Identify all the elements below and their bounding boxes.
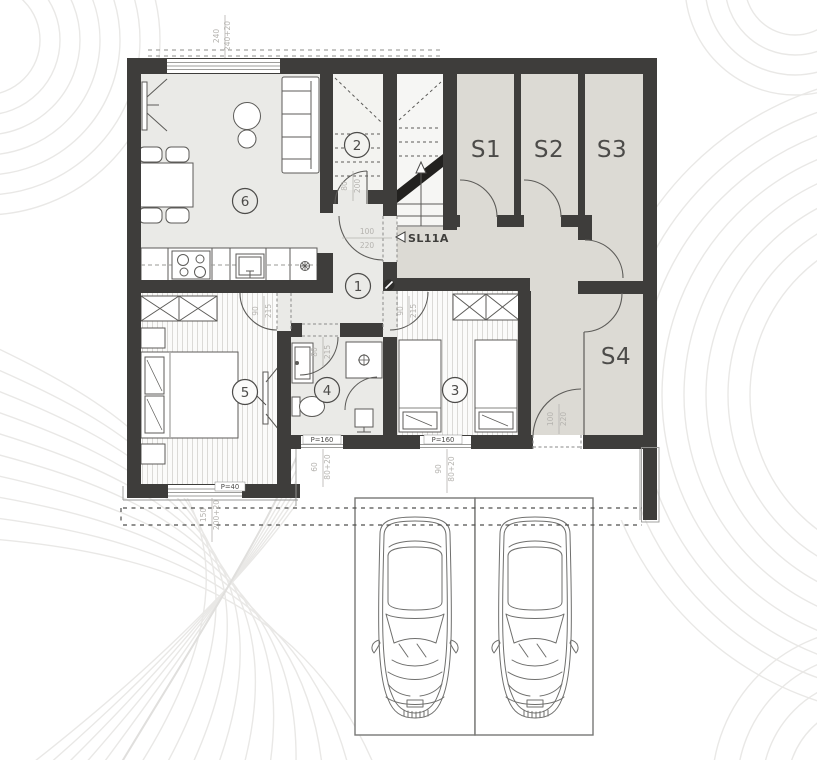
corridor-floor-lower [530,278,578,435]
nightstand [141,444,165,464]
p-label-bath: P=160 [311,436,334,444]
chair [139,147,162,162]
dim-door5-h: 215 [264,304,273,319]
room-number-living: 6 [241,194,250,210]
chair [166,147,189,162]
dim-winbath-h: 80+20 [323,454,332,480]
dim-top-w: 240 [212,29,221,44]
dim-winbed1-h: 200+20 [212,500,221,530]
parking [355,498,593,735]
dim-winbath-w: 60 [310,462,319,472]
floorplan-canvas: 240 240+20 80 200 100 220 90 215 80 215 … [0,0,817,760]
room-number-bathroom: 4 [323,383,332,399]
dim-exit-w: 100 [546,412,555,427]
dim-entry-h: 220 [360,241,375,250]
p-label-bedroom2: P=160 [432,436,455,444]
dim-door2-w: 80 [340,181,349,191]
dim-door5-w: 90 [251,306,260,316]
pillow [479,412,513,429]
room-number-bedroom2: 3 [451,383,460,399]
dim-entry-w: 100 [360,227,375,236]
drain-symbol-icon [301,262,310,271]
dim-winbed1-w: 150 [199,508,208,523]
chair [166,208,189,223]
unit-label: SL11A [408,232,449,245]
dim-door3-w: 90 [396,306,405,316]
dim-exit-h: 220 [559,412,568,427]
dining-table [133,163,193,207]
label-s1: S1 [471,137,501,163]
dim-door4-w: 80 [310,347,319,357]
nightstand [141,328,165,348]
room-number-stair-room: 2 [353,138,362,154]
dim-winbed2-w: 90 [434,464,443,474]
dim-door2-h: 200 [353,179,362,194]
floor-plan-svg: 240 240+20 80 200 100 220 90 215 80 215 … [0,0,817,760]
plant-icon [234,103,261,130]
label-s2: S2 [534,137,564,163]
parking-spot-2 [475,498,593,735]
plant-icon [238,130,256,148]
chair [139,208,162,223]
room-number-hall: 1 [354,279,363,295]
pillow [403,412,437,429]
dim-top-h: 240+20 [223,21,232,51]
room-number-bedroom1: 5 [241,385,250,401]
dim-winbed2-h: 80+20 [447,456,456,482]
washer [355,409,373,427]
p-label-bedroom1: P=40 [221,483,239,491]
dim-door3-h: 215 [409,304,418,319]
label-s4: S4 [601,344,631,370]
toilet-tank [292,397,300,416]
label-s3: S3 [597,137,627,163]
tv-living-icon [142,82,147,130]
parking-spot-1 [355,498,475,735]
dim-door4-h: 215 [323,345,332,360]
